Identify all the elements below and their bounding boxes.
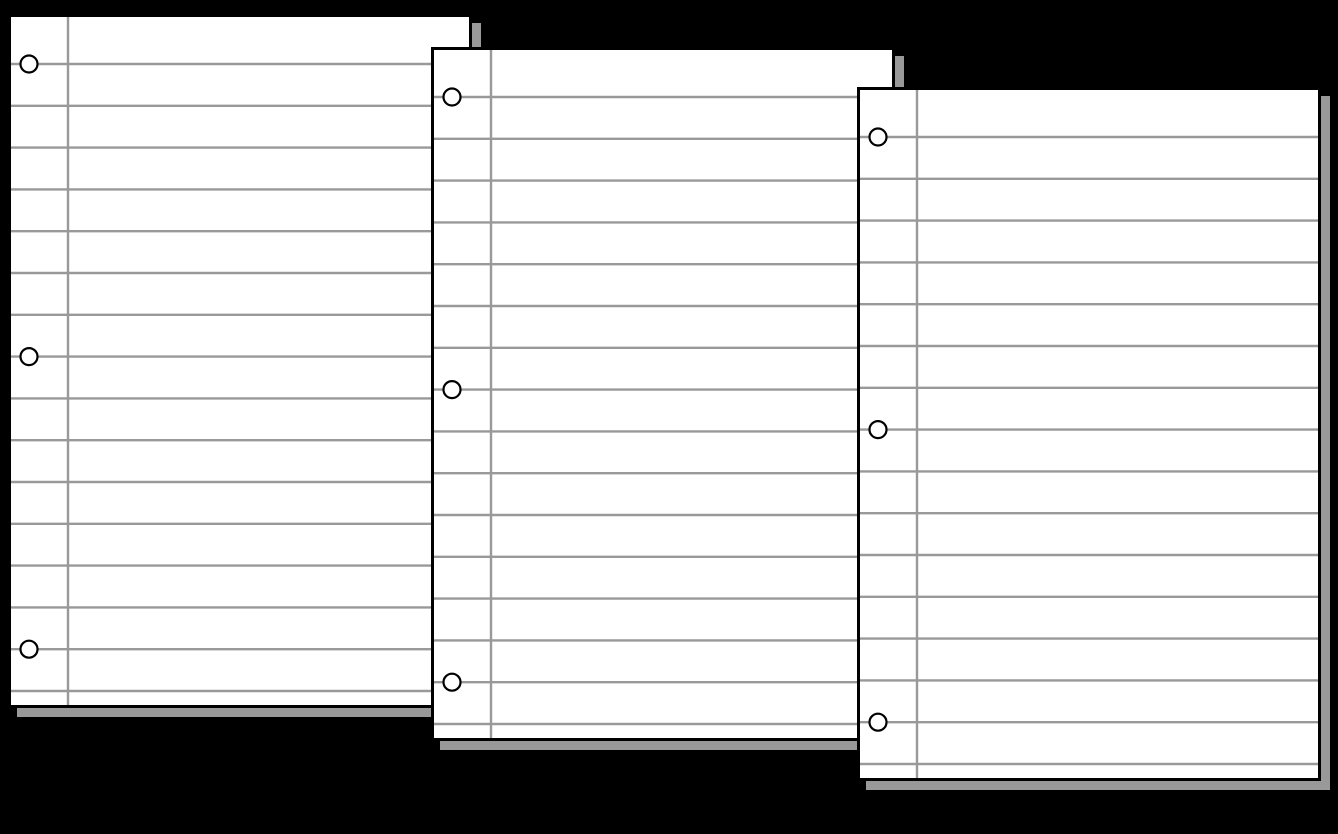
paper-background [431, 47, 895, 741]
punch-hole [870, 129, 887, 146]
punch-hole [444, 381, 461, 398]
punch-hole [870, 714, 887, 731]
punch-hole [444, 89, 461, 106]
paper-face [431, 47, 895, 741]
notebook-paper-3 [857, 87, 1321, 781]
punch-hole [21, 348, 38, 365]
punch-hole [444, 674, 461, 691]
punch-hole [21, 641, 38, 658]
paper-stack-canvas [0, 0, 1338, 834]
notebook-paper-1 [8, 14, 472, 708]
paper-face [857, 87, 1321, 781]
punch-hole [870, 421, 887, 438]
paper-background [857, 87, 1321, 781]
paper-face [8, 14, 472, 708]
notebook-paper-2 [431, 47, 895, 741]
punch-hole [21, 56, 38, 73]
paper-background [8, 14, 472, 708]
